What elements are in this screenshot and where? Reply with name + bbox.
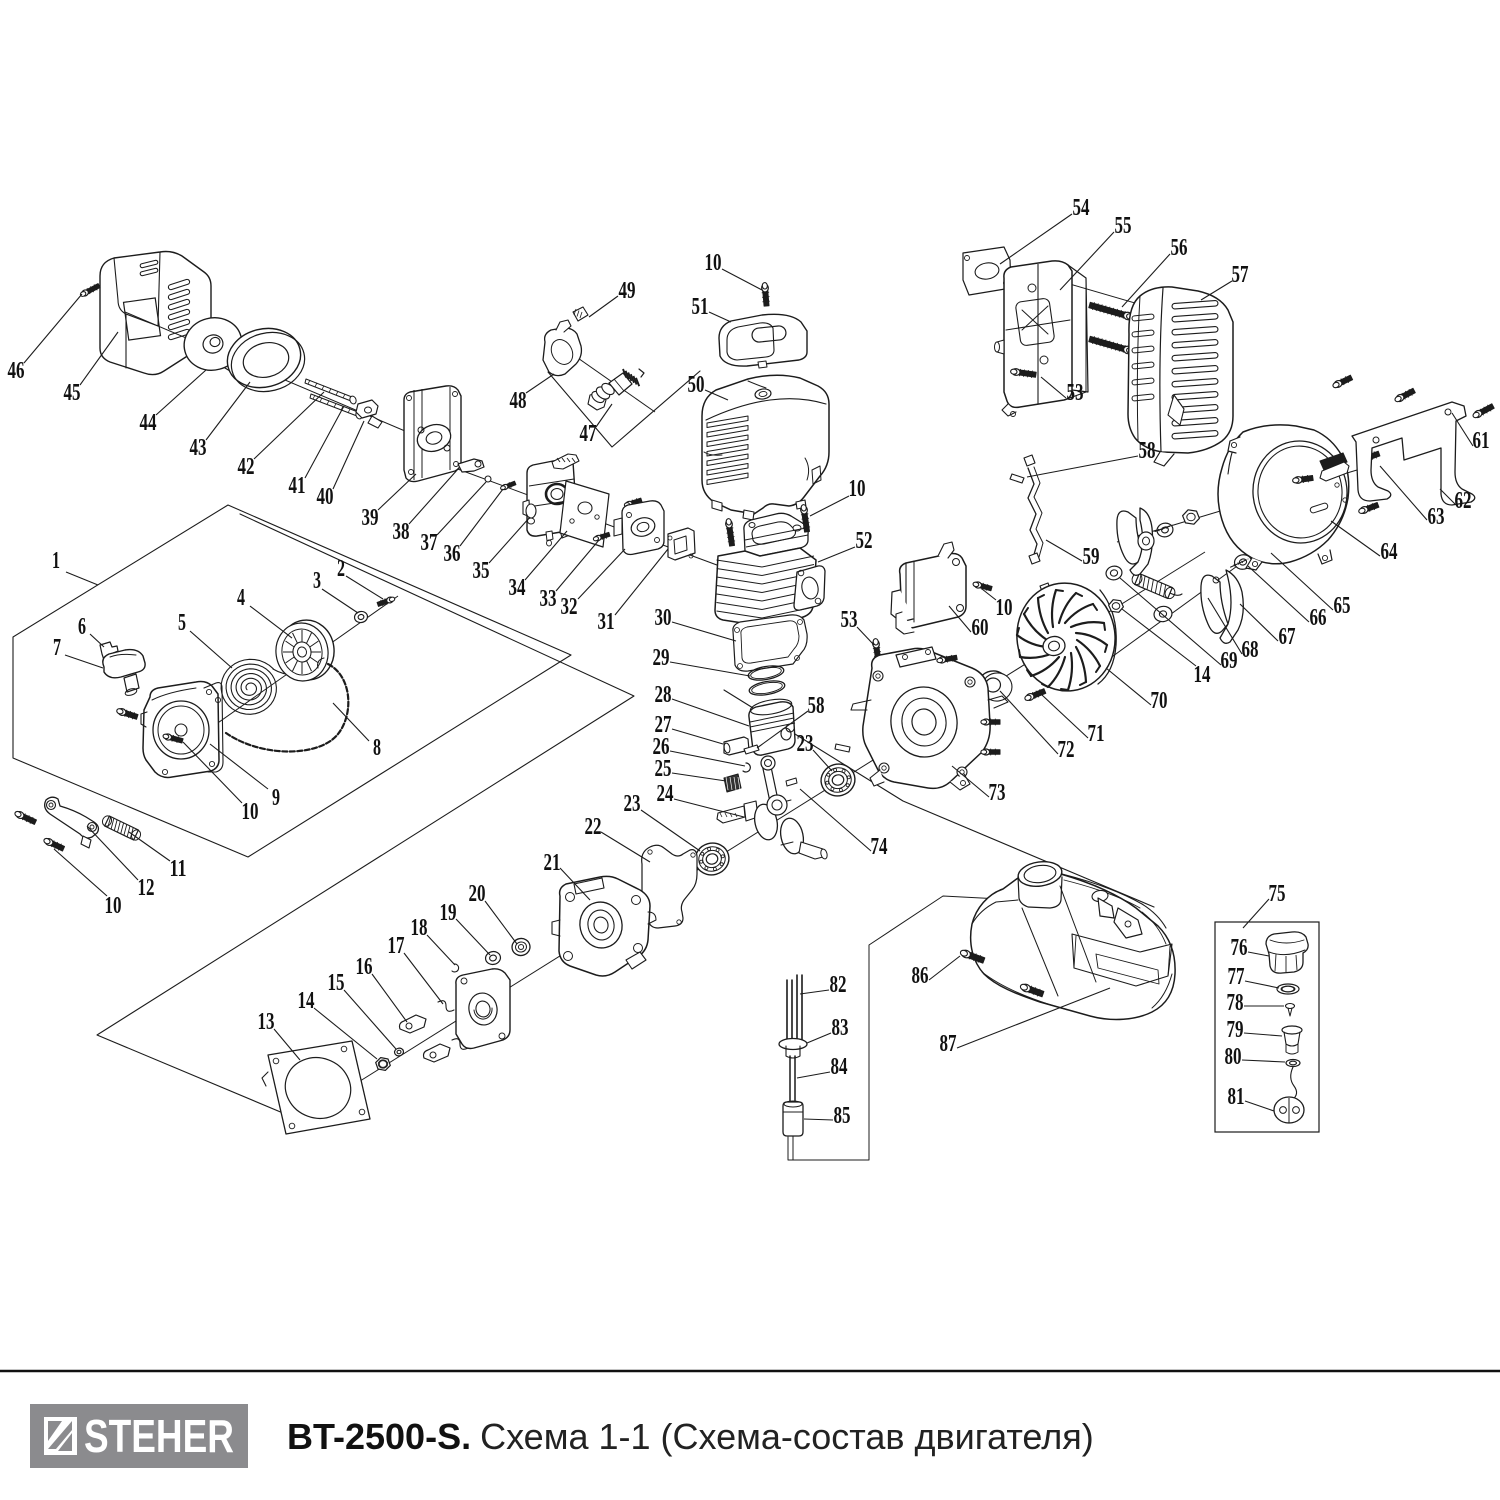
svg-text:49: 49 [619, 278, 636, 304]
svg-text:53: 53 [841, 607, 858, 633]
svg-text:BT-2500-S.Схема 1-1 (Схема-сос: BT-2500-S.Схема 1-1 (Схема-состав двигат… [287, 1416, 1094, 1457]
svg-text:23: 23 [797, 731, 814, 757]
svg-text:75: 75 [1269, 881, 1286, 907]
svg-text:77: 77 [1228, 964, 1245, 990]
svg-text:76: 76 [1231, 935, 1248, 961]
svg-text:16: 16 [356, 954, 373, 980]
svg-text:80: 80 [1225, 1044, 1242, 1070]
svg-text:56: 56 [1171, 235, 1188, 261]
svg-text:35: 35 [473, 558, 490, 584]
svg-text:47: 47 [580, 421, 597, 447]
svg-text:79: 79 [1227, 1017, 1244, 1043]
svg-text:61: 61 [1473, 428, 1490, 454]
svg-text:46: 46 [8, 358, 25, 384]
svg-text:37: 37 [421, 530, 438, 556]
svg-text:84: 84 [831, 1054, 848, 1080]
svg-text:64: 64 [1381, 539, 1398, 565]
svg-text:5: 5 [178, 610, 186, 636]
svg-text:10: 10 [996, 595, 1013, 621]
svg-text:7: 7 [53, 635, 61, 661]
svg-text:9: 9 [272, 785, 280, 811]
svg-text:78: 78 [1227, 990, 1244, 1016]
svg-text:24: 24 [657, 781, 674, 807]
svg-text:44: 44 [140, 410, 157, 436]
svg-text:57: 57 [1232, 262, 1249, 288]
svg-text:38: 38 [393, 519, 410, 545]
svg-text:63: 63 [1428, 504, 1445, 530]
svg-text:10: 10 [849, 476, 866, 502]
svg-text:82: 82 [830, 972, 847, 998]
svg-text:53: 53 [1067, 380, 1084, 406]
svg-text:22: 22 [585, 814, 602, 840]
svg-text:8: 8 [373, 735, 381, 761]
svg-text:29: 29 [653, 645, 670, 671]
svg-text:43: 43 [190, 435, 207, 461]
svg-text:21: 21 [544, 850, 561, 876]
svg-text:10: 10 [242, 799, 259, 825]
svg-text:31: 31 [598, 609, 615, 635]
svg-text:74: 74 [871, 834, 888, 860]
svg-text:55: 55 [1115, 213, 1132, 239]
svg-text:4: 4 [237, 585, 245, 611]
svg-text:18: 18 [411, 915, 428, 941]
svg-text:32: 32 [561, 594, 578, 620]
svg-text:68: 68 [1242, 637, 1259, 663]
svg-text:2: 2 [337, 556, 345, 582]
svg-text:STEHER: STEHER [84, 1410, 234, 1462]
svg-text:34: 34 [509, 575, 526, 601]
svg-text:72: 72 [1058, 737, 1075, 763]
svg-text:62: 62 [1455, 488, 1472, 514]
svg-text:14: 14 [298, 988, 315, 1014]
svg-text:60: 60 [972, 615, 989, 641]
svg-text:3: 3 [313, 568, 321, 594]
svg-text:86: 86 [912, 963, 929, 989]
svg-text:67: 67 [1279, 624, 1296, 650]
svg-text:73: 73 [989, 780, 1006, 806]
svg-text:27: 27 [655, 712, 672, 738]
svg-text:54: 54 [1073, 195, 1090, 221]
svg-text:23: 23 [624, 791, 641, 817]
svg-text:41: 41 [289, 473, 306, 499]
svg-text:83: 83 [832, 1015, 849, 1041]
svg-text:45: 45 [64, 380, 81, 406]
svg-text:81: 81 [1228, 1084, 1245, 1110]
svg-text:12: 12 [138, 875, 155, 901]
svg-text:42: 42 [238, 454, 255, 480]
svg-text:52: 52 [856, 528, 873, 554]
svg-text:69: 69 [1221, 648, 1238, 674]
svg-text:85: 85 [834, 1103, 851, 1129]
svg-text:28: 28 [655, 682, 672, 708]
svg-text:70: 70 [1151, 688, 1168, 714]
svg-text:48: 48 [510, 388, 527, 414]
svg-text:59: 59 [1083, 544, 1100, 570]
svg-text:11: 11 [170, 856, 187, 882]
svg-text:10: 10 [105, 893, 122, 919]
svg-text:40: 40 [317, 484, 334, 510]
svg-text:1: 1 [52, 548, 60, 574]
svg-text:58: 58 [1139, 438, 1156, 464]
svg-text:13: 13 [258, 1009, 275, 1035]
svg-text:17: 17 [388, 933, 405, 959]
svg-text:6: 6 [78, 614, 86, 640]
svg-text:71: 71 [1088, 721, 1105, 747]
svg-text:58: 58 [808, 693, 825, 719]
svg-text:19: 19 [440, 900, 457, 926]
svg-text:66: 66 [1310, 605, 1327, 631]
svg-text:30: 30 [655, 605, 672, 631]
svg-text:15: 15 [328, 970, 345, 996]
svg-text:50: 50 [688, 372, 705, 398]
svg-text:20: 20 [469, 881, 486, 907]
svg-text:87: 87 [940, 1031, 957, 1057]
svg-text:10: 10 [705, 250, 722, 276]
svg-text:36: 36 [444, 541, 461, 567]
svg-text:51: 51 [692, 294, 709, 320]
svg-text:33: 33 [540, 586, 557, 612]
svg-text:65: 65 [1334, 593, 1351, 619]
svg-text:39: 39 [362, 505, 379, 531]
